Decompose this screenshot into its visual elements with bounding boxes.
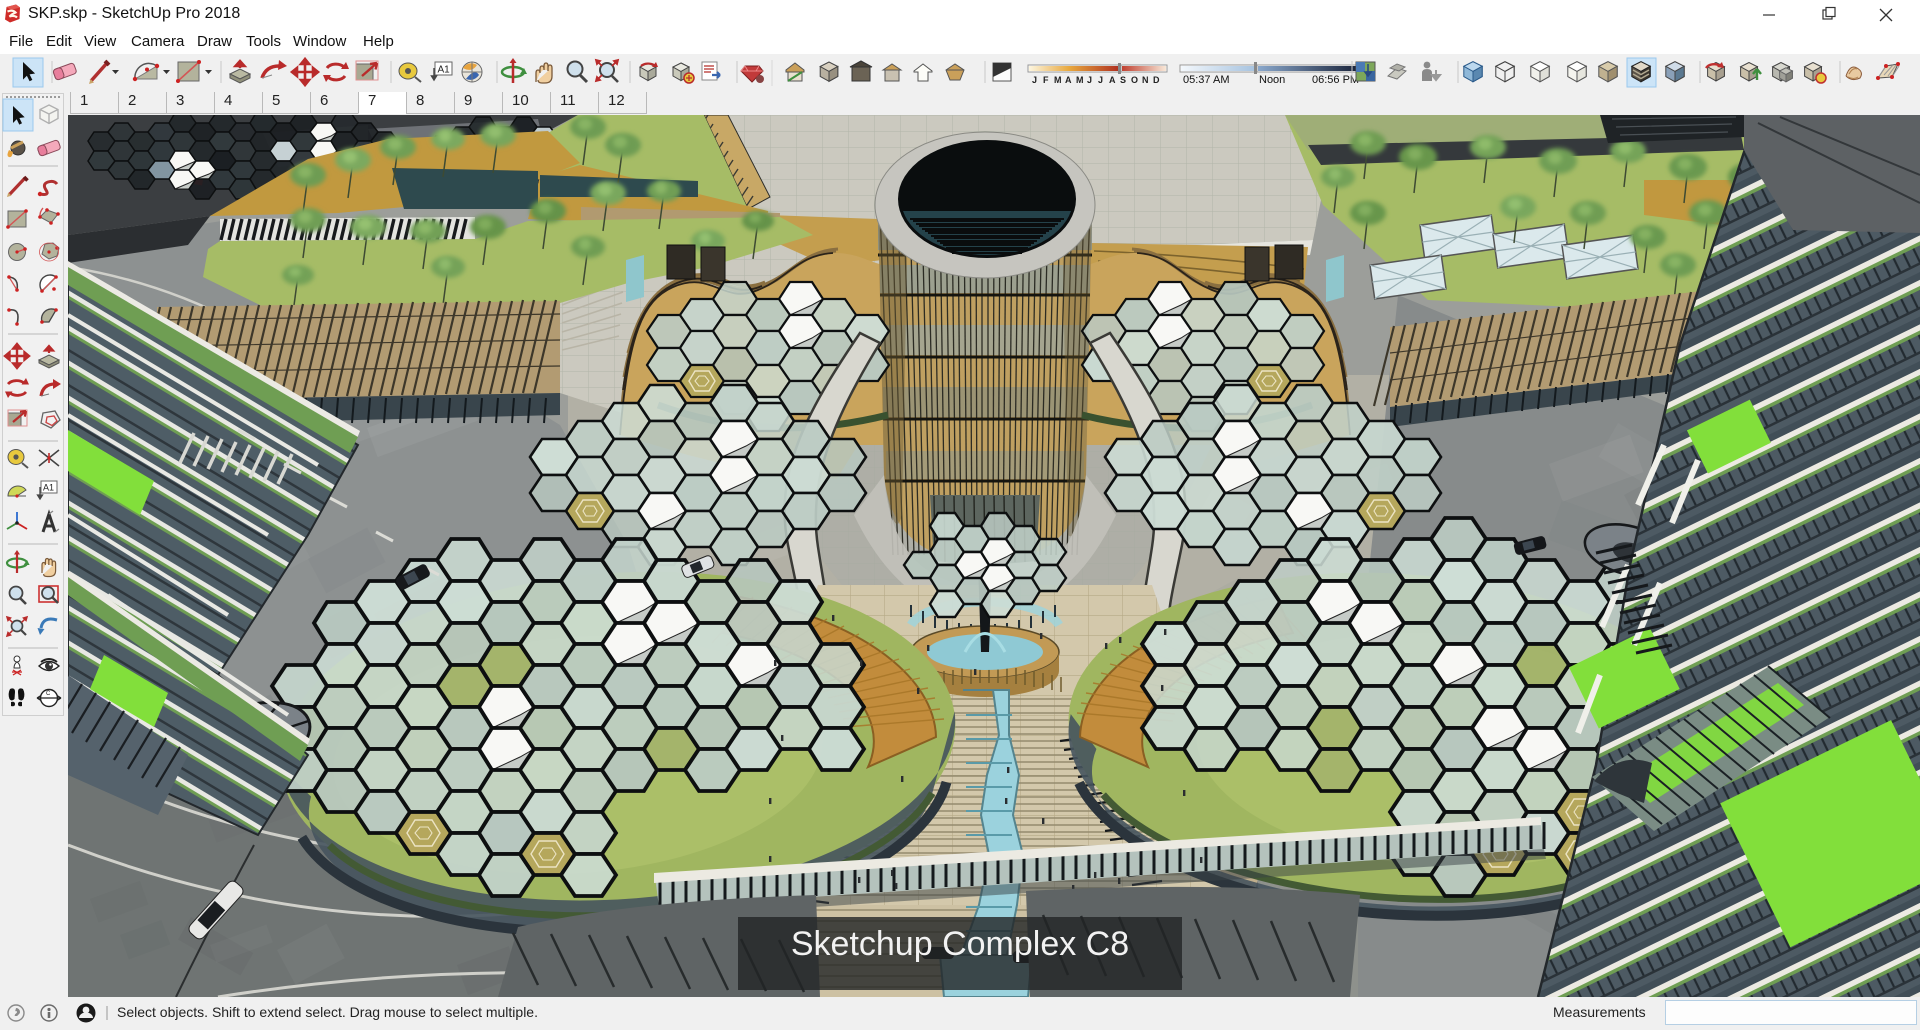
- svg-text:M: M: [1076, 75, 1084, 85]
- svg-text:C: C: [46, 691, 51, 697]
- svg-text:J: J: [1087, 75, 1092, 85]
- svg-text:M: M: [1054, 75, 1062, 85]
- svg-text:F: F: [1043, 75, 1049, 85]
- svg-text:J: J: [1098, 75, 1103, 85]
- svg-text:S: S: [1120, 75, 1126, 85]
- svg-text:A: A: [1065, 75, 1072, 85]
- svg-text:O: O: [1131, 75, 1138, 85]
- svg-text:Sketchup Complex C8: Sketchup Complex C8: [791, 925, 1129, 963]
- svg-text:05:37 AM: 05:37 AM: [1183, 74, 1229, 86]
- svg-text:J: J: [1032, 75, 1037, 85]
- svg-text:A1: A1: [438, 65, 451, 76]
- svg-text:Noon: Noon: [1259, 74, 1285, 86]
- svg-text:D: D: [1153, 75, 1160, 85]
- svg-text:N: N: [1142, 75, 1149, 85]
- svg-text:A: A: [1109, 75, 1116, 85]
- svg-text:A1: A1: [43, 483, 54, 493]
